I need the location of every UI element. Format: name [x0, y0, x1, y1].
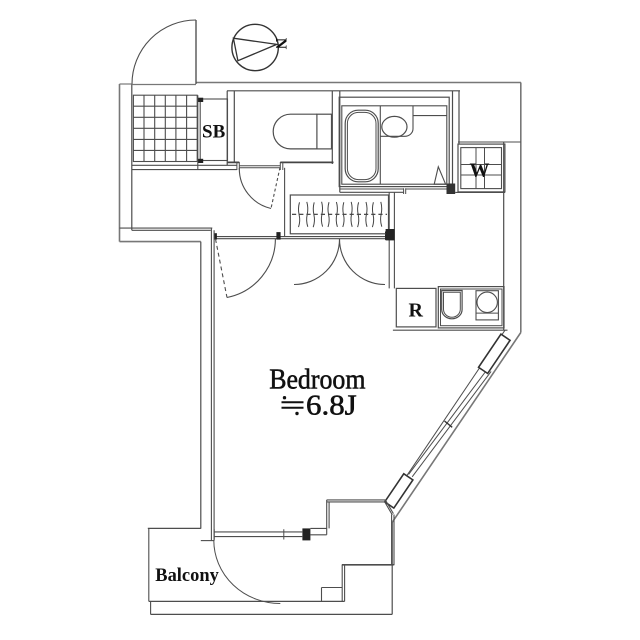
svg-text:SB: SB [202, 121, 226, 142]
svg-text:R: R [409, 299, 424, 321]
svg-text:6.8J: 6.8J [306, 391, 357, 422]
svg-text:W: W [470, 159, 490, 181]
svg-text:Balcony: Balcony [155, 565, 219, 586]
svg-text:N: N [272, 38, 289, 50]
